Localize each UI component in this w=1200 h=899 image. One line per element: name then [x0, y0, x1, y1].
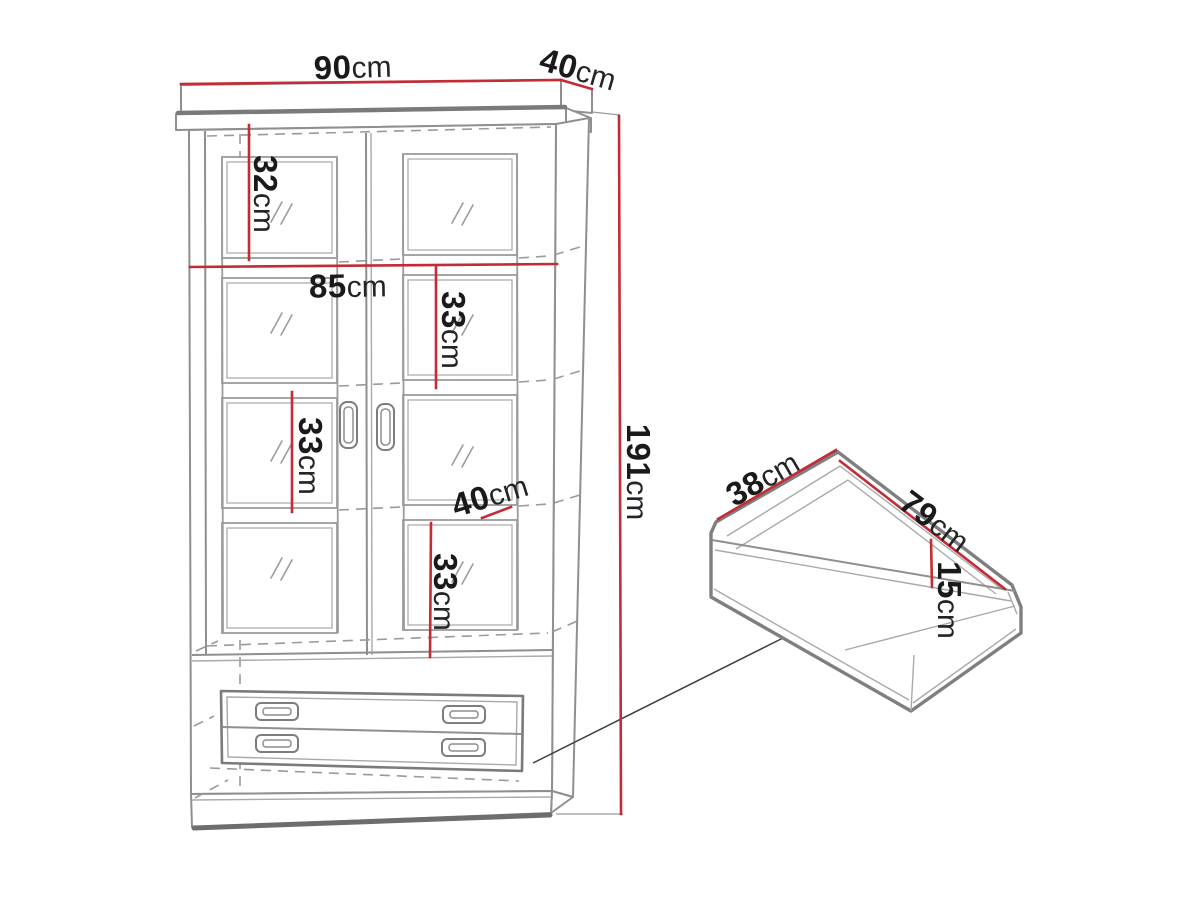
diagram-canvas: 90cm 40cm 32cm 85cm 33cm 33cm 40cm 33cm …: [0, 0, 1200, 899]
dim-label-inner-width: 85cm: [309, 266, 387, 304]
dim-label-lower-shelf-height: 33cm: [427, 553, 464, 631]
left-door-handle: [340, 402, 357, 448]
dim-label-drawer-height: 15cm: [931, 561, 968, 639]
right-door-handle: [377, 404, 394, 450]
drawer-handle: [442, 739, 485, 756]
drawer-handle: [443, 706, 485, 723]
cabinet-drawing: [176, 80, 592, 828]
extension-line-top: [592, 112, 620, 115]
dim-label-top-width: 90cm: [313, 47, 392, 87]
dim-label-middle-shelf-height: 33cm: [292, 417, 329, 495]
drawer-handle: [256, 703, 298, 720]
dim-label-total-height: 191cm: [620, 424, 657, 521]
dim-label-top-section-height: 32cm: [247, 155, 284, 233]
drawer-handle: [256, 735, 298, 752]
cabinet-body-side: [552, 118, 589, 797]
dim-label-upper-shelf-height: 33cm: [435, 291, 472, 369]
diagram-page: 90cm 40cm 32cm 85cm 33cm 33cm 40cm 33cm …: [0, 0, 1200, 899]
cabinet-drawer-fronts: [221, 691, 523, 771]
